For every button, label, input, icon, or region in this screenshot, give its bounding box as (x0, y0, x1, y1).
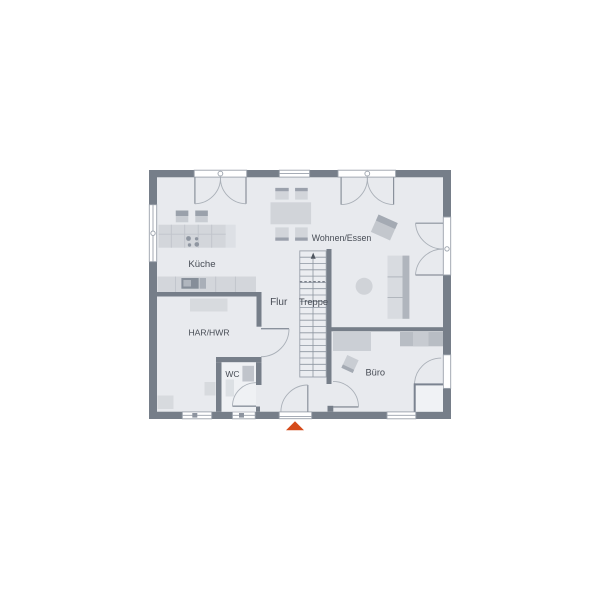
svg-text:Küche: Küche (188, 259, 215, 270)
svg-text:Wohnen/Essen: Wohnen/Essen (312, 233, 372, 243)
svg-text:Büro: Büro (365, 368, 385, 378)
svg-text:Flur: Flur (270, 297, 288, 308)
svg-text:WC: WC (225, 369, 239, 379)
svg-text:Treppe: Treppe (299, 297, 328, 307)
svg-text:HAR/HWR: HAR/HWR (188, 328, 229, 338)
